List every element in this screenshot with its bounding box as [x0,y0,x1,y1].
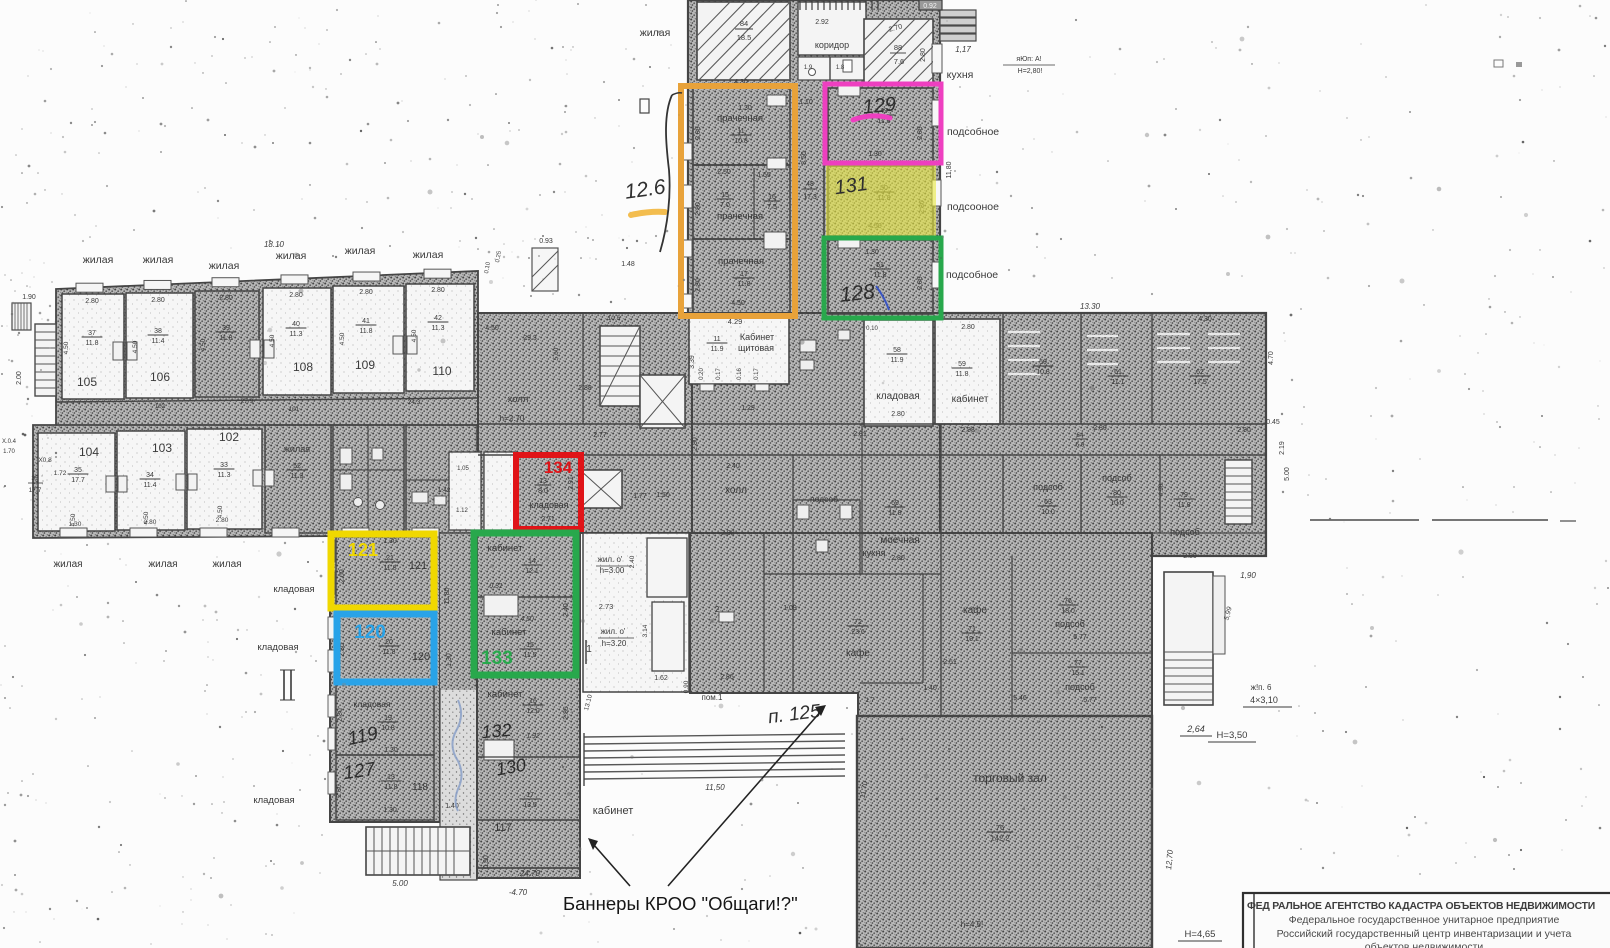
svg-text:11.8: 11.8 [359,328,372,335]
svg-text:X.0.4: X.0.4 [2,439,17,445]
svg-text:24.70: 24.70 [519,869,541,878]
svg-text:11.1: 11.1 [1111,379,1124,386]
svg-text:подсоб: подсоб [1170,527,1200,537]
svg-text:11,80: 11,80 [444,587,451,604]
svg-text:12,70: 12,70 [1164,849,1175,870]
svg-text:11.8: 11.8 [873,272,886,279]
svg-text:жилая: жилая [284,444,310,454]
svg-text:2.80: 2.80 [336,784,343,798]
svg-text:1.72: 1.72 [54,470,67,477]
svg-text:13: 13 [387,774,395,781]
svg-text:4.50: 4.50 [411,329,418,342]
svg-text:моечная: моечная [880,535,919,546]
svg-text:77: 77 [1074,660,1082,667]
svg-text:5.00: 5.00 [1284,467,1291,481]
svg-text:Баннеры КРОО "Общаги!?": Баннеры КРОО "Общаги!?" [563,893,798,914]
svg-text:132: 132 [481,720,513,743]
svg-text:24.3: 24.3 [408,399,421,406]
svg-text:35: 35 [74,467,82,474]
svg-text:117: 117 [494,822,512,834]
svg-text:17.7: 17.7 [29,487,42,494]
svg-text:41: 41 [362,318,370,325]
svg-text:1.09: 1.09 [783,605,797,612]
svg-text:5.00: 5.00 [392,879,408,888]
svg-text:2.77: 2.77 [593,432,607,439]
svg-text:кабинет: кабинет [952,393,989,405]
svg-text:-4.70: -4.70 [509,888,528,897]
svg-text:120: 120 [354,622,386,643]
svg-text:34: 34 [146,472,154,479]
svg-text:17.5: 17.5 [1193,379,1207,386]
svg-text:1.30: 1.30 [865,249,879,256]
svg-text:18.10: 18.10 [264,240,285,249]
svg-text:2.19: 2.19 [1279,441,1286,455]
svg-text:133: 133 [481,648,513,669]
svg-text:64: 64 [1076,432,1084,439]
svg-text:16: 16 [768,194,776,201]
svg-text:10.0: 10.0 [1110,500,1124,507]
svg-text:Н=2,80!: Н=2,80! [1018,68,1043,75]
svg-text:106: 106 [150,370,170,384]
svg-text:2.71: 2.71 [541,516,555,523]
svg-text:21: 21 [386,555,394,562]
svg-text:11.8: 11.8 [384,784,397,791]
svg-text:10.8: 10.8 [734,138,748,145]
svg-text:110: 110 [432,364,451,378]
svg-text:88: 88 [894,43,902,52]
svg-text:жилая: жилая [345,245,376,257]
svg-text:0.90: 0.90 [483,855,490,869]
svg-text:23.6: 23.6 [851,629,865,636]
svg-text:подсооное: подсооное [947,201,999,213]
svg-text:0.20: 0.20 [699,368,705,380]
svg-text:121: 121 [348,540,378,560]
svg-text:жилая: жилая [83,254,114,266]
svg-text:102: 102 [155,404,166,410]
svg-text:17: 17 [526,792,534,799]
svg-text:2.98: 2.98 [721,530,735,537]
svg-text:1.77: 1.77 [633,493,647,500]
svg-text:11.4: 11.4 [151,338,164,345]
svg-text:1.30: 1.30 [384,747,398,754]
svg-text:72: 72 [854,619,862,626]
svg-text:5.77: 5.77 [1083,697,1097,704]
svg-text:10.8: 10.8 [381,725,395,732]
svg-text:76: 76 [996,823,1004,832]
svg-text:2: 2 [715,605,720,614]
svg-text:подсоб: подсоб [810,494,838,504]
svg-text:1.12: 1.12 [456,508,468,514]
svg-text:18.0: 18.0 [1061,608,1075,615]
svg-text:39: 39 [222,325,230,332]
svg-text:2.00: 2.00 [16,371,23,385]
svg-text:0.17: 0.17 [716,368,722,380]
svg-text:2.80: 2.80 [216,517,229,524]
svg-text:79: 79 [1180,492,1188,499]
svg-text:7.5: 7.5 [767,204,777,211]
svg-text:11.3: 11.3 [217,472,230,479]
svg-text:X0.8: X0.8 [38,457,52,464]
svg-text:1.42: 1.42 [438,487,451,494]
svg-text:1.30: 1.30 [383,807,397,814]
svg-text:11.8: 11.8 [888,510,901,517]
svg-text:подсоб: подсоб [1102,473,1132,483]
svg-text:1.7: 1.7 [865,697,874,704]
svg-text:4×3,10: 4×3,10 [1250,695,1278,705]
svg-text:14: 14 [528,558,536,565]
svg-text:134: 134 [544,458,573,477]
svg-text:пом.1: пом.1 [702,693,724,702]
svg-text:17.3: 17.3 [803,194,817,201]
svg-text:0.31: 0.31 [489,583,503,590]
svg-text:52: 52 [293,463,301,470]
svg-text:2.80: 2.80 [920,48,927,62]
svg-text:17: 17 [740,271,748,278]
svg-text:кладовая: кладовая [253,795,294,806]
svg-text:2.80: 2.80 [961,324,975,331]
svg-text:объектов недвижимости: объектов недвижимости [1365,941,1484,948]
svg-text:12.0: 12.0 [526,708,540,715]
svg-text:жилая: жилая [640,27,671,39]
svg-text:h=3.20: h=3.20 [602,639,627,648]
svg-text:2.80: 2.80 [359,289,373,296]
svg-text:кабинет: кабинет [492,627,528,638]
svg-text:кабинет: кабинет [593,805,633,817]
svg-text:120: 120 [412,651,430,663]
svg-text:35: 35 [31,475,39,482]
svg-text:жилая: жилая [413,249,444,261]
svg-text:4.50: 4.50 [339,332,346,345]
svg-text:109: 109 [355,358,375,372]
svg-text:2.80: 2.80 [917,276,924,290]
svg-text:2.51: 2.51 [943,659,957,666]
svg-text:0.93: 0.93 [539,238,553,245]
svg-text:6.9: 6.9 [1075,442,1084,449]
svg-text:11.3: 11.3 [431,325,444,332]
svg-text:2.80: 2.80 [891,555,905,562]
svg-text:103: 103 [152,441,172,455]
svg-text:жилая: жилая [148,559,177,570]
svg-text:1.05: 1.05 [457,466,469,472]
svg-text:2.80: 2.80 [1183,553,1197,560]
svg-text:8.50: 8.50 [801,151,808,165]
svg-text:2.80: 2.80 [695,126,702,140]
svg-text:жилая: жилая [212,559,241,570]
svg-text:8.0: 8.0 [538,488,548,495]
svg-text:27.9: 27.9 [241,398,254,405]
svg-text:2.91: 2.91 [568,476,575,490]
svg-text:Федеральное государственное у: Федеральное государственное унитарное пр… [1289,914,1560,926]
svg-text:жилая: жилая [209,260,240,272]
svg-text:121: 121 [409,560,427,572]
svg-text:2.80: 2.80 [1093,425,1107,432]
svg-text:11.8: 11.8 [1177,502,1190,509]
svg-text:0.17: 0.17 [754,368,760,380]
svg-text:подсоб: подсоб [1065,682,1095,692]
svg-text:13: 13 [539,478,547,485]
svg-text:жилая: жилая [143,254,174,266]
svg-text:0.92: 0.92 [923,3,937,10]
svg-text:10.5: 10.5 [608,315,621,322]
svg-text:2.80: 2.80 [692,437,699,451]
svg-text:1.30: 1.30 [738,105,752,112]
svg-text:прачечная: прачечная [717,211,763,222]
svg-text:1.9: 1.9 [804,65,813,71]
svg-text:2.80: 2.80 [695,202,702,216]
svg-text:ФЕД РАЛЬНОЕ АГЕНТСТВО КАДАСТРА: ФЕД РАЛЬНОЕ АГЕНТСТВО КАДАСТРА ОБЪЕКТОВ … [1247,901,1595,912]
svg-text:13.5: 13.5 [523,802,537,809]
svg-text:11.9: 11.9 [710,346,723,353]
svg-text:коридор: коридор [815,40,849,50]
svg-text:жилая: жилая [53,559,82,570]
svg-text:h=2.70: h=2.70 [500,414,525,423]
svg-text:13.30: 13.30 [1080,302,1101,311]
svg-text:4.50: 4.50 [731,300,745,307]
svg-text:4.50: 4.50 [132,340,139,353]
svg-text:2.88: 2.88 [578,385,592,392]
svg-text:2.60: 2.60 [339,569,346,583]
svg-text:2.81: 2.81 [853,431,867,438]
svg-text:37: 37 [88,330,96,337]
svg-text:4.50: 4.50 [63,341,70,354]
svg-text:11.5: 11.5 [523,652,536,659]
svg-text:5.46: 5.46 [1013,695,1027,702]
svg-text:1: 1 [586,644,592,655]
svg-text:2.50: 2.50 [717,169,731,176]
svg-text:0.90: 0.90 [683,680,690,693]
svg-text:11.9: 11.9 [890,357,903,364]
svg-text:жил. о': жил. о' [598,555,623,564]
svg-text:кафе: кафе [846,647,870,659]
svg-text:1.10: 1.10 [799,99,813,106]
svg-text:2.80: 2.80 [891,411,905,418]
svg-text:50: 50 [1039,359,1047,366]
svg-text:3.39: 3.39 [689,355,696,369]
svg-text:5.77: 5.77 [1073,634,1087,641]
svg-text:7.0: 7.0 [720,202,730,209]
svg-text:кладовая: кладовая [876,391,919,402]
svg-text:1.30: 1.30 [868,151,882,158]
svg-text:17.7: 17.7 [71,477,85,484]
svg-text:76: 76 [1064,598,1072,605]
svg-text:2.80: 2.80 [85,298,99,305]
svg-text:Н=3,50: Н=3,50 [1217,730,1248,741]
svg-text:18.5: 18.5 [737,33,752,42]
svg-text:61: 61 [1114,369,1122,376]
svg-text:104: 104 [79,445,99,459]
svg-text:62: 62 [1196,369,1204,376]
svg-text:0.16: 0.16 [737,368,743,380]
svg-text:2.80: 2.80 [1237,427,1251,434]
svg-text:холл: холл [725,485,747,496]
svg-text:11.4: 11.4 [143,482,156,489]
svg-text:11,80: 11,80 [946,161,953,178]
svg-text:1,17: 1,17 [955,45,971,54]
svg-text:подсоб: подсоб [1033,482,1063,492]
svg-text:яЮп: А!: яЮп: А! [1016,56,1041,63]
svg-text:h=4.5!: h=4.5! [961,920,983,929]
svg-text:жил. о': жил. о' [601,627,626,636]
svg-text:80: 80 [1113,490,1121,497]
svg-text:1,90: 1,90 [1240,571,1256,580]
svg-text:11.8: 11.8 [383,565,396,572]
svg-text:4.50: 4.50 [269,334,276,347]
svg-text:29.3: 29.3 [523,335,537,342]
svg-text:7.6: 7.6 [894,57,904,66]
svg-text:h=3.00: h=3.00 [600,566,625,575]
svg-text:4.70: 4.70 [1268,351,1275,365]
svg-text:40: 40 [292,321,300,328]
svg-text:1.50: 1.50 [656,492,670,499]
svg-text:2.40: 2.40 [629,555,636,568]
svg-text:11: 11 [713,336,720,343]
svg-text:15: 15 [526,642,534,649]
svg-text:2.40: 2.40 [726,463,740,470]
svg-text:подсобное: подсобное [946,269,998,281]
svg-text:кухня: кухня [947,69,974,81]
svg-text:Российский государственный цен: Российский государственный центр инвента… [1277,928,1572,940]
svg-text:2.80: 2.80 [219,295,233,302]
svg-text:131: 131 [833,173,869,199]
svg-text:101: 101 [289,406,300,413]
svg-text:59: 59 [958,361,966,368]
svg-text:2.92: 2.92 [815,19,829,26]
svg-text:69: 69 [891,500,899,507]
svg-text:20: 20 [385,639,393,646]
svg-text:2.80: 2.80 [695,278,702,292]
svg-text:42: 42 [434,315,442,322]
svg-text:12.1: 12.1 [525,568,539,575]
svg-text:128: 128 [839,280,877,307]
svg-text:5.60: 5.60 [553,347,560,360]
svg-text:1.70: 1.70 [3,449,15,455]
svg-text:жилая: жилая [276,250,307,262]
svg-text:подсобное: подсобное [947,126,999,138]
svg-text:кладовая: кладовая [257,642,298,653]
svg-text:1.90: 1.90 [22,294,36,301]
svg-text:прачечная: прачечная [718,256,764,267]
svg-text:1,30: 1,30 [446,653,453,667]
svg-text:19: 19 [384,715,392,722]
svg-text:11.8: 11.8 [737,281,750,288]
svg-text:2.80: 2.80 [337,708,344,722]
svg-text:51: 51 [876,262,884,269]
svg-text:4.50: 4.50 [1158,483,1165,496]
svg-text:кухня: кухня [863,548,886,558]
svg-text:2.86: 2.86 [720,674,734,681]
svg-text:Н=4,65: Н=4,65 [1185,929,1216,940]
svg-text:105: 105 [77,375,97,389]
svg-text:11.8: 11.8 [219,335,232,342]
svg-text:подсоб: подсоб [1055,619,1085,629]
svg-text:кафе: кафе [963,604,987,616]
svg-text:1.8: 1.8 [836,65,845,71]
svg-text:4.50: 4.50 [200,338,207,351]
svg-text:102: 102 [219,430,239,444]
svg-text:4.50: 4.50 [485,325,499,332]
svg-text:1.55: 1.55 [757,172,771,179]
svg-text:ж!п. 6: ж!п. 6 [1251,683,1272,692]
svg-text:Кабинет: Кабинет [740,332,774,342]
svg-text:2.73: 2.73 [599,602,614,611]
svg-text:кладовая: кладовая [273,584,314,595]
svg-text:кладовая: кладовая [354,699,391,709]
svg-text:4.50: 4.50 [520,616,534,623]
svg-text:1.48: 1.48 [621,261,635,268]
svg-text:58: 58 [893,347,901,354]
svg-text:11.3: 11.3 [289,331,302,338]
svg-text:15.1: 15.1 [1071,670,1085,677]
svg-text:1.40: 1.40 [923,685,937,692]
svg-text:84: 84 [740,19,748,28]
svg-text:0.10: 0.10 [866,326,878,332]
svg-text:щитовая: щитовая [738,343,774,353]
svg-text:11.8: 11.8 [85,340,98,347]
svg-text:108: 108 [293,360,313,374]
svg-text:2.85: 2.85 [563,706,570,720]
svg-text:2,64: 2,64 [1186,724,1205,734]
svg-text:1.92: 1.92 [526,733,540,740]
svg-text:3.14: 3.14 [642,624,649,637]
svg-text:118: 118 [412,782,428,793]
svg-text:11,50: 11,50 [705,783,725,792]
svg-text:16: 16 [529,698,537,705]
svg-text:2.80: 2.80 [917,126,924,140]
svg-text:15: 15 [721,192,729,199]
svg-text:71: 71 [968,626,976,633]
svg-text:48: 48 [806,181,814,188]
svg-text:2.40: 2.40 [563,603,570,617]
svg-text:19.1: 19.1 [965,636,979,643]
svg-text:11.8: 11.8 [955,371,968,378]
svg-text:2.80: 2.80 [144,519,157,526]
svg-text:1.30: 1.30 [69,521,82,528]
svg-text:10.8: 10.8 [1036,369,1050,376]
svg-text:прачечная: прачечная [717,113,763,124]
svg-text:холл: холл [508,394,529,405]
svg-text:142.2: 142.2 [991,834,1010,843]
svg-text:кладовая: кладовая [529,500,568,510]
svg-text:0.45: 0.45 [1266,419,1280,426]
svg-text:11.8: 11.8 [382,649,395,656]
svg-text:63: 63 [1044,499,1052,506]
svg-text:2.88: 2.88 [961,427,975,434]
svg-text:4.30: 4.30 [1198,316,1212,323]
svg-text:1.29: 1.29 [741,405,755,412]
svg-text:1.30: 1.30 [383,538,397,545]
svg-text:10.0: 10.0 [1041,509,1055,516]
svg-text:11: 11 [737,128,744,135]
svg-text:1.62: 1.62 [654,675,668,682]
svg-text:торговый зал: торговый зал [973,771,1047,785]
svg-text:2.80: 2.80 [151,297,165,304]
svg-text:11.3: 11.3 [290,473,303,480]
svg-text:33: 33 [220,462,228,469]
svg-text:кабинет: кабинет [488,543,524,554]
svg-text:кабинет: кабинет [488,689,524,700]
svg-text:2.80: 2.80 [431,287,445,294]
svg-text:38: 38 [154,328,162,335]
